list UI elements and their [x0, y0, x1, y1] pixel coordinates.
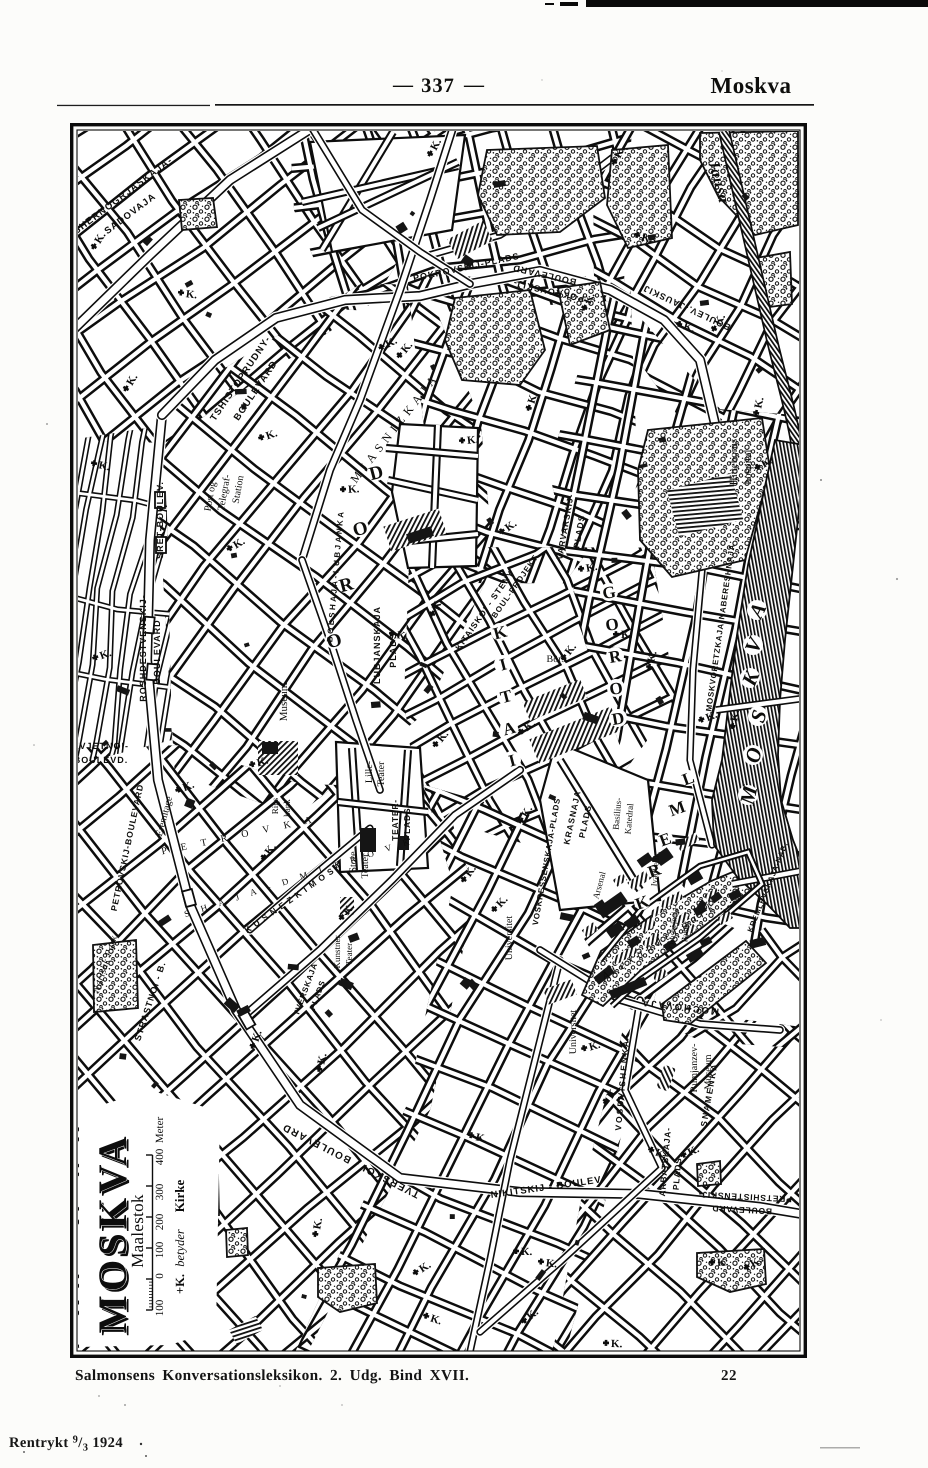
svg-text:Maalestok: Maalestok [128, 1194, 147, 1268]
svg-text:LUBJANSKAJA: LUBJANSKAJA [372, 606, 382, 684]
svg-text:K.: K. [521, 1246, 533, 1258]
svg-text:bank: bank [282, 799, 292, 817]
svg-text:Kirke: Kirke [172, 1180, 187, 1213]
svg-text:337: 337 [421, 75, 455, 97]
svg-text:Universitet: Universitet [568, 1010, 579, 1055]
svg-text:K.: K. [585, 561, 598, 575]
svg-text:0: 0 [154, 1273, 166, 1279]
svg-text:—: — [392, 74, 414, 96]
svg-text:300: 300 [154, 1183, 166, 1200]
svg-text:Rigs: Rigs [270, 797, 280, 814]
svg-text:—: — [463, 74, 485, 96]
svg-text:BOULEVD.: BOULEVD. [74, 755, 129, 765]
svg-text:Museum: Museum [278, 682, 290, 721]
svg-text:BOULEVARD: BOULEVARD [152, 619, 162, 684]
svg-text:400: 400 [154, 1148, 166, 1165]
svg-text:K.: K. [728, 709, 742, 722]
svg-text:K.: K. [717, 1256, 729, 1269]
svg-text:K.: K. [311, 1217, 325, 1231]
svg-text:22: 22 [721, 1368, 737, 1384]
svg-text:Kunstner: Kunstner [332, 936, 342, 969]
svg-text:200: 200 [154, 1213, 166, 1230]
svg-text:ZVJETNOI-: ZVJETNOI- [73, 741, 129, 751]
svg-text:TEATER-: TEATER- [390, 799, 400, 841]
svg-text:Palata: Palata [679, 921, 691, 943]
svg-text:100: 100 [154, 1241, 166, 1258]
svg-text:Moskva: Moskva [711, 73, 792, 98]
svg-text:K.: K. [611, 1338, 623, 1350]
svg-text:K.: K. [466, 434, 479, 447]
svg-text:Lille-: Lille- [364, 761, 375, 783]
svg-text:100: 100 [154, 1299, 166, 1316]
svg-text:ROSHDESTVENSKIJ-: ROSHDESTVENSKIJ- [138, 594, 148, 702]
svg-text:K.: K. [185, 288, 198, 301]
svg-text:Teater: Teater [376, 761, 387, 787]
svg-text:Meter: Meter [154, 1117, 166, 1144]
svg-text:Salmonsens Konversationsleksik: Salmonsens Konversationsleksikon. 2. Udg… [75, 1367, 469, 1384]
svg-text:Hitteborns: Hitteborns [728, 439, 740, 485]
svg-text:Rentrykt 9/3 1924: Rentrykt 9/3 1924 [9, 1435, 123, 1454]
svg-text:Universitet: Universitet [504, 916, 515, 961]
svg-text:K.: K. [348, 483, 360, 496]
svg-text:K.: K. [396, 629, 409, 642]
svg-text:K.: K. [545, 1257, 558, 1270]
svg-text:+K.: +K. [173, 1274, 187, 1294]
svg-text:Rumjanzev-: Rumjanzev- [689, 1044, 700, 1093]
svg-text:betyder: betyder [173, 1229, 187, 1267]
svg-text:hospital: hospital [742, 450, 754, 485]
svg-text:Teater: Teater [344, 943, 354, 965]
svg-text:SRET-BOULEV.: SRET-BOULEV. [155, 481, 165, 559]
svg-text:K.: K. [621, 629, 633, 641]
